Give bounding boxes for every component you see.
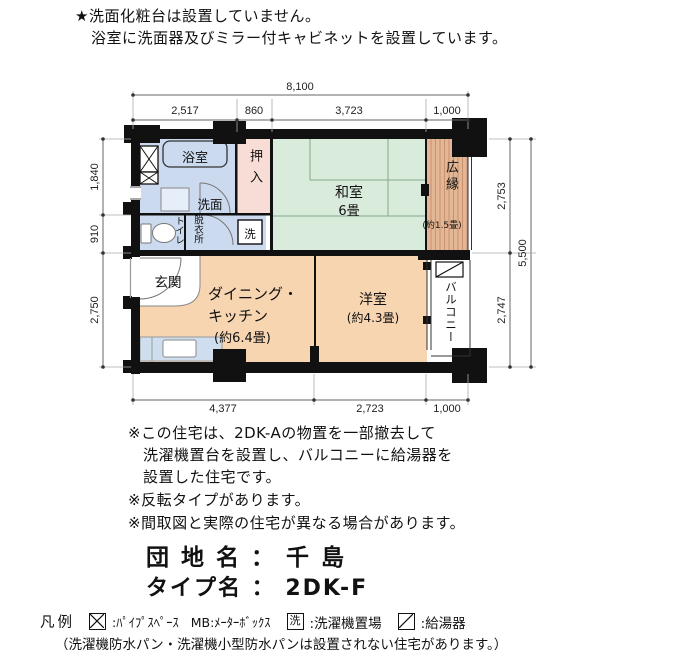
washer-legend-icon: 洗: [287, 613, 304, 630]
washitsu-size-label: 6畳: [320, 200, 378, 219]
legend-title: 凡例: [40, 611, 75, 632]
dim-top-total: 8,100: [286, 81, 314, 93]
dk-label-line2: キッチン: [208, 305, 268, 326]
dim-top-3: 3,723: [335, 105, 363, 117]
dim-top-2: 860: [245, 105, 263, 117]
water-heater-legend-icon: [398, 613, 415, 630]
bathtub-icon: [161, 188, 189, 211]
balcony-label: バルコニー: [443, 281, 459, 355]
toilet-tank-icon: [141, 224, 151, 243]
pipe-space-legend-icon: [89, 613, 106, 630]
yoshitsu-size-label: (約4.3畳): [328, 309, 418, 326]
note-line-4: ※反転タイプがあります。: [128, 489, 310, 510]
estate-type-line: タイプ名 ： 2DK-F: [146, 570, 368, 602]
dim-top-1: 2,517: [171, 105, 199, 117]
note-line-2: 洗濯機置台を設置し、バルコニーに給湯器を: [143, 444, 453, 465]
estate-name-line: 団 地 名 ： 千 島: [146, 538, 346, 572]
dim-bottom-1: 4,377: [209, 403, 237, 415]
bath-label: 浴室: [167, 147, 223, 166]
legend-pipe-space-text: :ﾊﾟｲﾌﾟｽﾍﾟｰｽ: [112, 612, 179, 631]
dim-left-2: 910: [89, 225, 101, 243]
note-line-3: 設置した住宅です。: [143, 466, 281, 487]
legend-washer-text: :洗濯機置場: [310, 612, 382, 632]
hiroen-label: 広縁: [441, 160, 460, 215]
hiroen-size-label: (約1.5畳): [411, 218, 473, 231]
dim-top-4: 1,000: [433, 105, 461, 117]
washer-space-label: 洗: [238, 226, 262, 242]
yoshitsu-label: 洋室: [333, 289, 413, 309]
dk-label-line1: ダイニング・: [208, 283, 298, 304]
dim-bottom-2: 2,723: [356, 403, 384, 415]
kitchen-sink-icon: [163, 340, 196, 357]
bath-window: [130, 186, 141, 200]
dim-left-3: 2,750: [89, 296, 101, 324]
note-line-5: ※間取図と実際の住宅が異なる場合があります。: [128, 512, 465, 533]
closet-label: 押入: [245, 149, 264, 211]
genkan-label: 玄関: [142, 271, 194, 291]
legend-heater-text: :給湯器: [421, 612, 466, 632]
legend-footnote: （洗濯機防水パン・洗濯機小型防水パンは設置されない住宅があります。）: [55, 633, 507, 650]
senmen-label: 洗面: [186, 194, 234, 213]
toilet-label: トイレ: [171, 216, 185, 250]
note-line-1: ※この住宅は、2DK-Aの物置を一部撤去して: [128, 422, 436, 443]
dim-right-total: 5,500: [517, 239, 529, 267]
dim-right-1: 2,753: [496, 182, 508, 210]
dressing-label: 脱衣所: [190, 215, 204, 251]
washitsu-label: 和室: [320, 182, 378, 202]
dim-bottom-3: 1,000: [433, 403, 461, 415]
legend-meter-box-text: MB:ﾒｰﾀｰﾎﾞｯｸｽ: [191, 612, 271, 631]
legend-row: 凡例 :ﾊﾟｲﾌﾟｽﾍﾟｰｽ MB:ﾒｰﾀｰﾎﾞｯｸｽ 洗 :洗濯機置場 :給湯…: [40, 611, 466, 632]
floorplan-page: ★洗面化粧台は設置していません。 浴室に洗面器及びミラー付キャビネットを設置して…: [0, 0, 700, 650]
dk-size-label: (約6.4畳): [214, 327, 271, 346]
dim-left-1: 1,840: [89, 163, 101, 191]
dim-right-2: 2,747: [496, 296, 508, 324]
